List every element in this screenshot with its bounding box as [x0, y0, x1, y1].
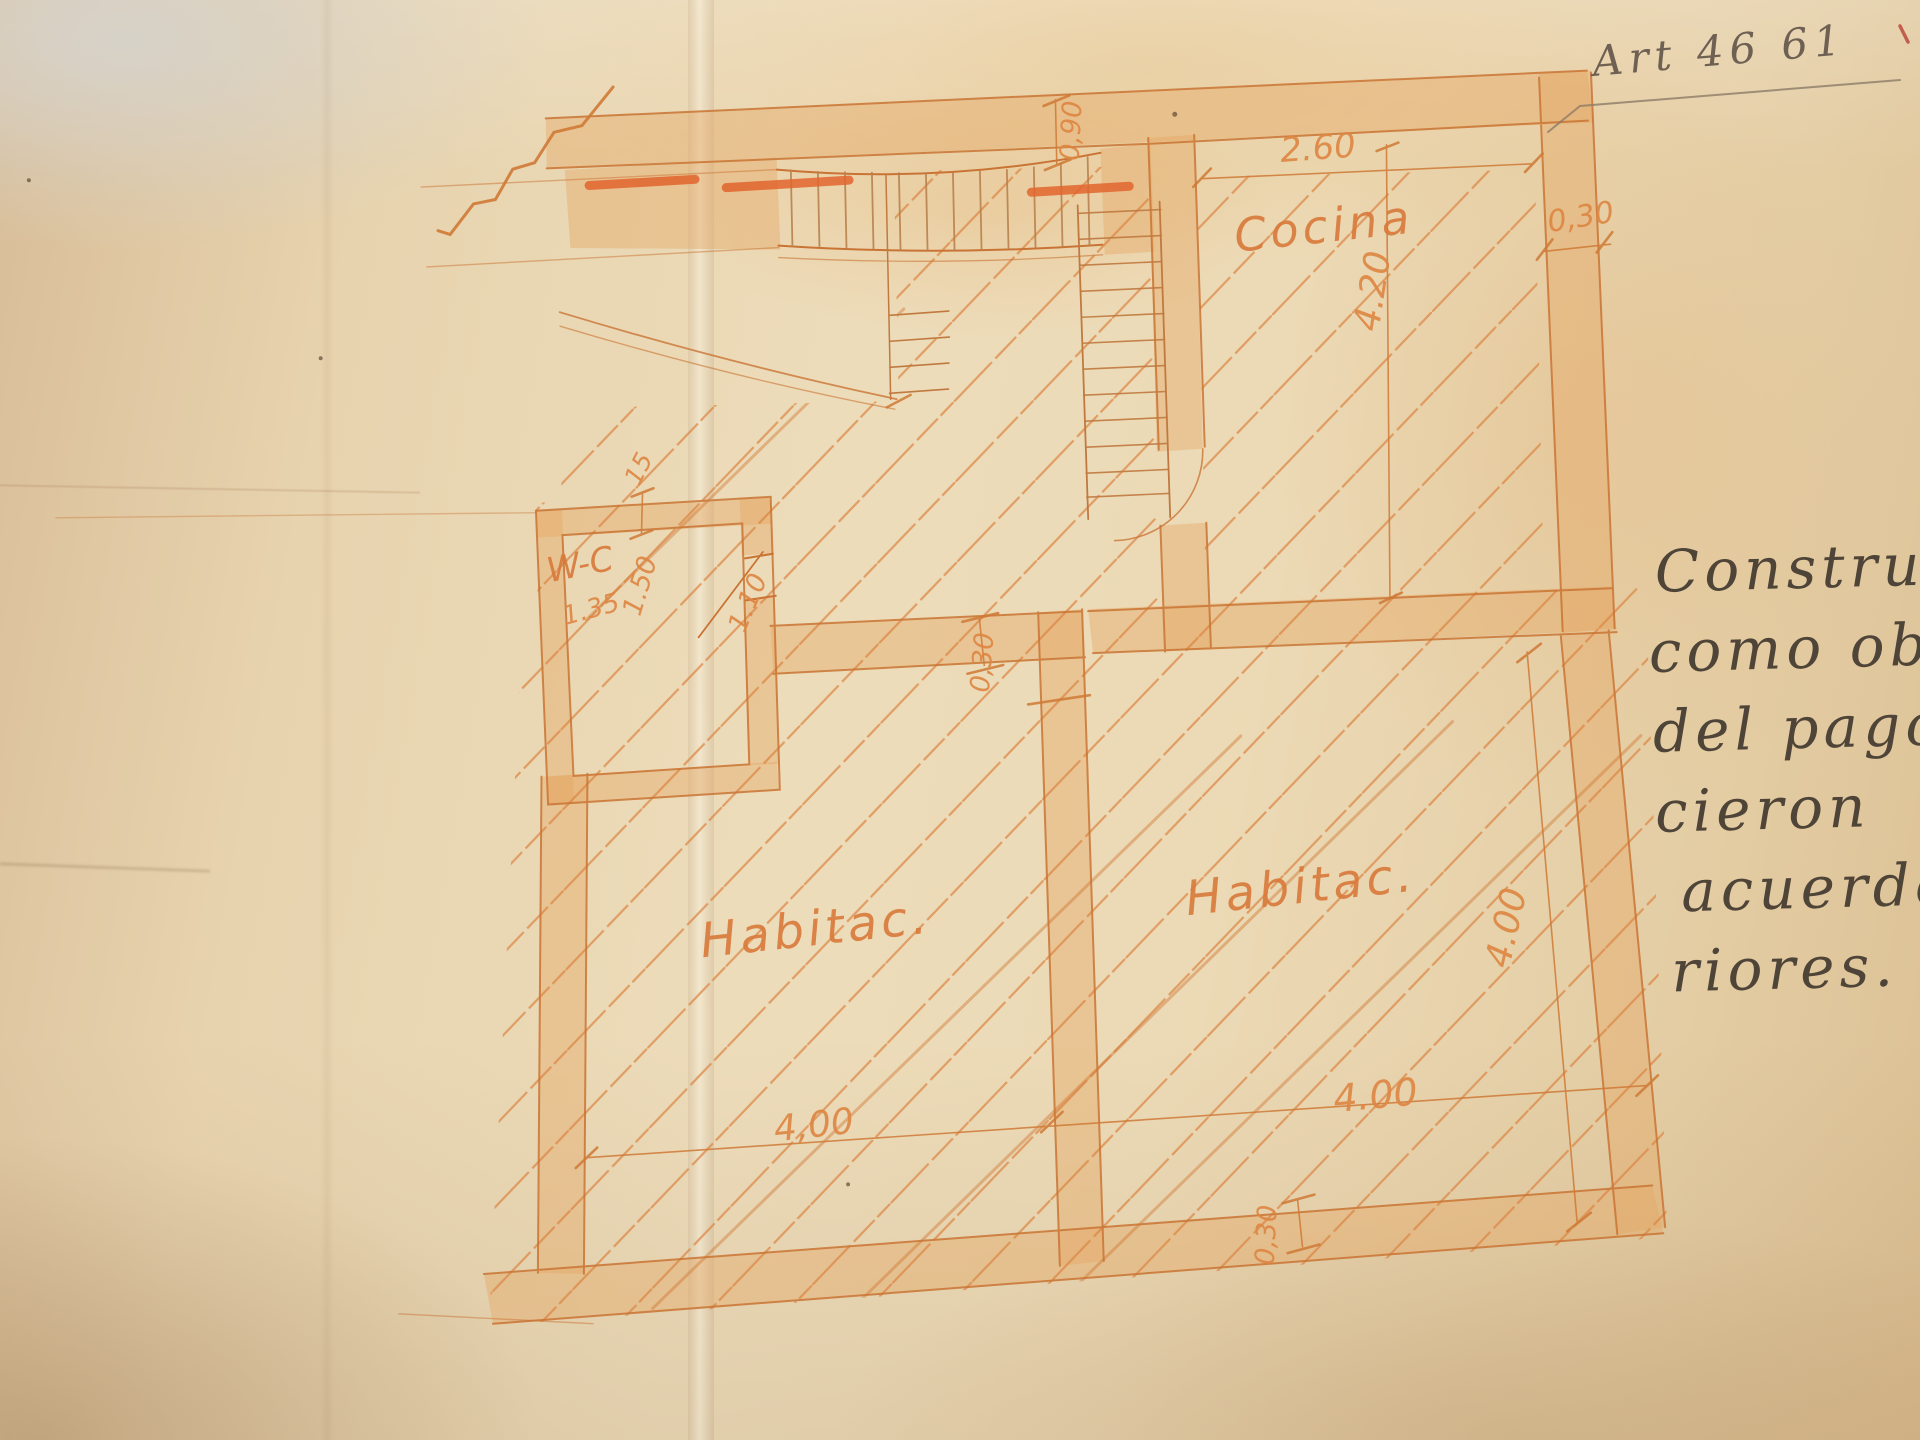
photo-of-floor-plan: Cocina W-C Habitac. Habitac. 2.60 4.20 0…	[0, 0, 1920, 1440]
dim-bedroom-right-width: 4.00	[1331, 1070, 1419, 1121]
note-line: como ob	[1648, 604, 1920, 692]
art-ref-underline	[1548, 80, 1900, 132]
red-tick	[1900, 26, 1908, 42]
note-line: acuerdo	[1654, 844, 1920, 932]
floor-plan-drawing: Cocina W-C Habitac. Habitac. 2.60 4.20 0…	[0, 0, 1920, 1440]
dim-bottom-wall: 0,30	[1250, 1204, 1284, 1266]
dim-center-wall: 0,30	[965, 631, 1001, 694]
note-line: cieron	[1652, 764, 1920, 852]
handwritten-notes: Constru como ob del pago cieron acuerdo …	[1646, 524, 1920, 1012]
note-line: riores.	[1656, 924, 1920, 1012]
dim-stair-passage: 0,90	[1055, 100, 1089, 162]
floor-plan: Cocina W-C Habitac. Habitac. 2.60 4.20 0…	[25, 65, 1693, 1351]
dim-bedroom-left-width: 4,00	[772, 1101, 856, 1150]
hatching	[428, 127, 1693, 1343]
note-line: Constru	[1646, 524, 1920, 612]
dim-kitchen-width: 2.60	[1279, 126, 1357, 171]
note-line: del pago	[1650, 684, 1920, 772]
